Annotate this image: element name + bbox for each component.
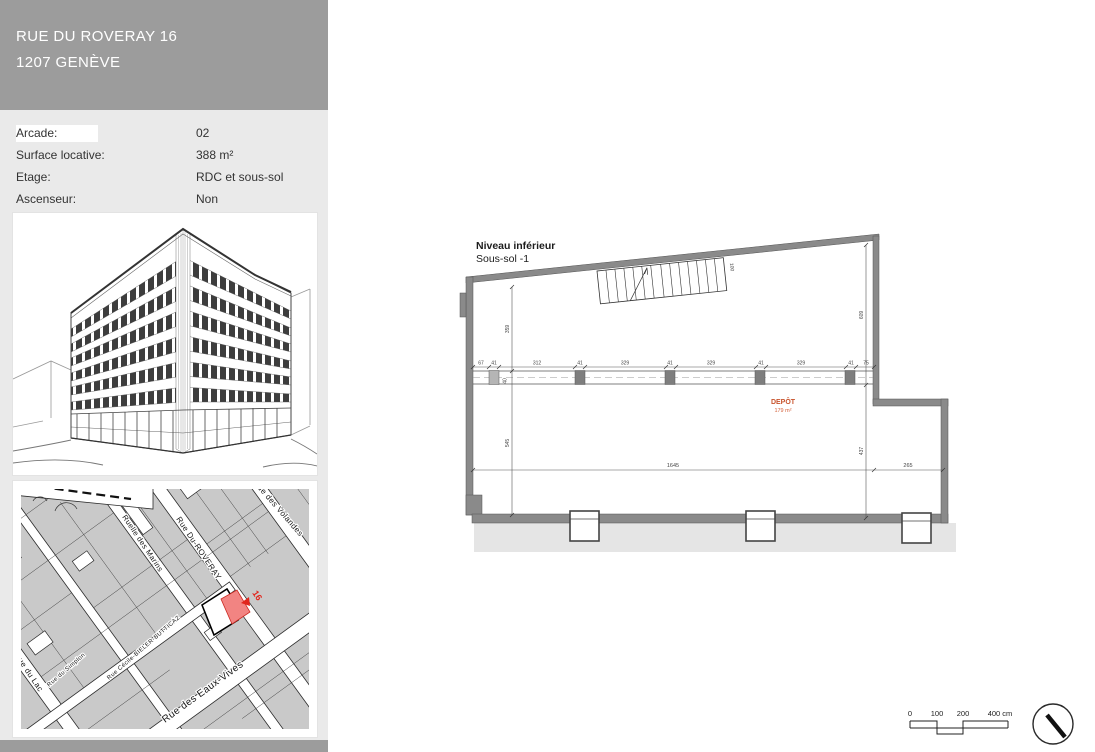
svg-text:200: 200 <box>957 709 970 718</box>
detail-value: RDC et sous-sol <box>196 170 283 184</box>
sidebar: RUE DU ROVERAY 16 1207 GENÈVE Arcade: 02… <box>0 0 328 752</box>
north-arrow <box>1033 704 1073 744</box>
location-map-panel: 16 Rue des Volandes Ruelle des Marins Ru… <box>12 480 318 738</box>
scale-bar <box>910 721 1008 734</box>
svg-text:41: 41 <box>848 361 854 367</box>
svg-text:67: 67 <box>478 361 484 367</box>
plan-footer-symbols: 0 100 200 400 cm <box>895 698 1085 752</box>
svg-text:329: 329 <box>707 361 716 367</box>
footer-bar <box>0 740 328 752</box>
svg-text:265: 265 <box>903 463 912 469</box>
svg-text:545: 545 <box>505 439 511 448</box>
svg-text:41: 41 <box>491 361 497 367</box>
svg-text:41: 41 <box>577 361 583 367</box>
svg-text:100: 100 <box>931 709 944 718</box>
detail-row-surface: Surface locative: 388 m² <box>0 148 328 166</box>
address-line1: RUE DU ROVERAY 16 <box>16 28 177 45</box>
svg-text:41: 41 <box>667 361 673 367</box>
svg-text:400 cm: 400 cm <box>988 709 1013 718</box>
detail-row-etage: Etage: RDC et sous-sol <box>0 170 328 188</box>
room-label: DEPÔT 179 m² <box>771 397 796 414</box>
pillar-band <box>473 371 873 385</box>
detail-row-ascenseur: Ascenseur: Non <box>0 192 328 210</box>
svg-text:359: 359 <box>505 325 511 334</box>
detail-value: 02 <box>196 126 209 140</box>
room-area: 179 m² <box>774 408 791 414</box>
room-name: DEPÔT <box>771 397 796 406</box>
floor-plan: 100 67 41 312 41 329 41 329 41 329 41 75… <box>440 230 980 560</box>
svg-text:329: 329 <box>797 361 806 367</box>
address-header: RUE DU ROVERAY 16 1207 GENÈVE <box>0 0 328 110</box>
building-illustration-panel <box>12 212 318 476</box>
svg-text:1645: 1645 <box>667 463 679 469</box>
stair-dim: 100 <box>728 263 735 272</box>
location-map: 16 Rue des Volandes Ruelle des Marins Ru… <box>13 481 317 737</box>
svg-text:437: 437 <box>859 447 865 456</box>
detail-label: Etage: <box>16 170 51 184</box>
svg-text:41: 41 <box>758 361 764 367</box>
svg-text:312: 312 <box>533 361 542 367</box>
detail-value: 388 m² <box>196 148 233 162</box>
map-blocks <box>13 481 317 737</box>
svg-text:609: 609 <box>859 311 865 320</box>
address-line2: 1207 GENÈVE <box>16 54 120 71</box>
svg-text:75: 75 <box>863 361 869 367</box>
scale-bar-labels: 0 100 200 400 cm <box>908 709 1012 718</box>
svg-text:0: 0 <box>908 709 912 718</box>
detail-row-arcade: Arcade: 02 <box>0 126 328 144</box>
side-dimension-labels: 359 545 609 437 1645 265 40 <box>503 311 913 469</box>
detail-value: Non <box>196 192 218 206</box>
detail-label: Arcade: <box>16 125 98 142</box>
property-sheet: RUE DU ROVERAY 16 1207 GENÈVE Arcade: 02… <box>0 0 1095 752</box>
detail-label: Surface locative: <box>16 148 105 162</box>
svg-text:329: 329 <box>621 361 630 367</box>
top-dimension-labels: 67 41 312 41 329 41 329 41 329 41 75 <box>478 361 869 367</box>
detail-label: Ascenseur: <box>16 192 76 206</box>
exterior-ground-band <box>474 523 956 552</box>
pillar-dim: 40 <box>503 378 509 384</box>
building-illustration <box>13 213 317 475</box>
